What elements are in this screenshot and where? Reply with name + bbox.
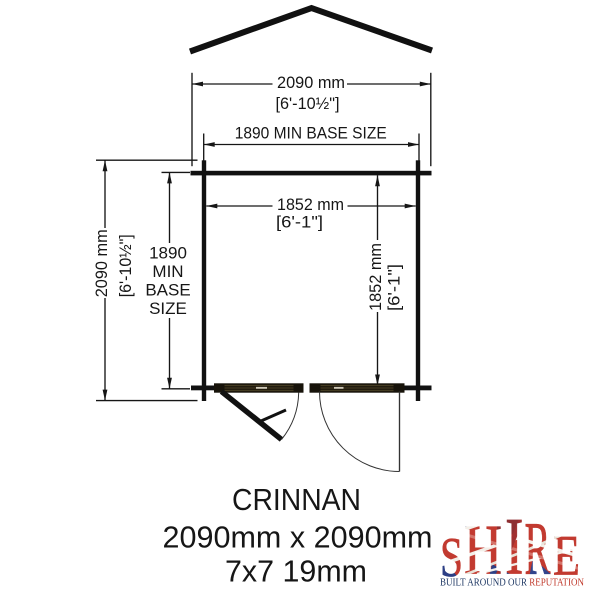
svg-text:7x7 19mm: 7x7 19mm <box>225 553 367 588</box>
svg-text:2090mm x 2090mm: 2090mm x 2090mm <box>163 520 433 555</box>
svg-text:[6'-10½"]: [6'-10½"] <box>116 234 135 297</box>
svg-text:[6'-1"]: [6'-1"] <box>276 213 323 232</box>
svg-text:2090 mm: 2090 mm <box>277 73 345 92</box>
svg-text:MIN: MIN <box>152 262 183 281</box>
svg-text:BUILT AROUND OUR REPUTATION: BUILT AROUND OUR REPUTATION <box>440 578 584 589</box>
svg-text:[6'-1"]: [6'-1"] <box>385 264 404 311</box>
svg-text:2090 mm: 2090 mm <box>92 229 111 297</box>
svg-text:1890: 1890 <box>149 244 187 263</box>
svg-text:SIZE: SIZE <box>149 299 187 318</box>
svg-text:[6'-10½"]: [6'-10½"] <box>276 94 340 113</box>
svg-text:1890 MIN BASE SIZE: 1890 MIN BASE SIZE <box>235 123 387 142</box>
svg-text:1852 mm: 1852 mm <box>277 195 344 214</box>
svg-text:BASE: BASE <box>145 281 190 300</box>
svg-text:CRINNAN: CRINNAN <box>232 482 361 517</box>
svg-text:1852 mm: 1852 mm <box>366 243 385 311</box>
